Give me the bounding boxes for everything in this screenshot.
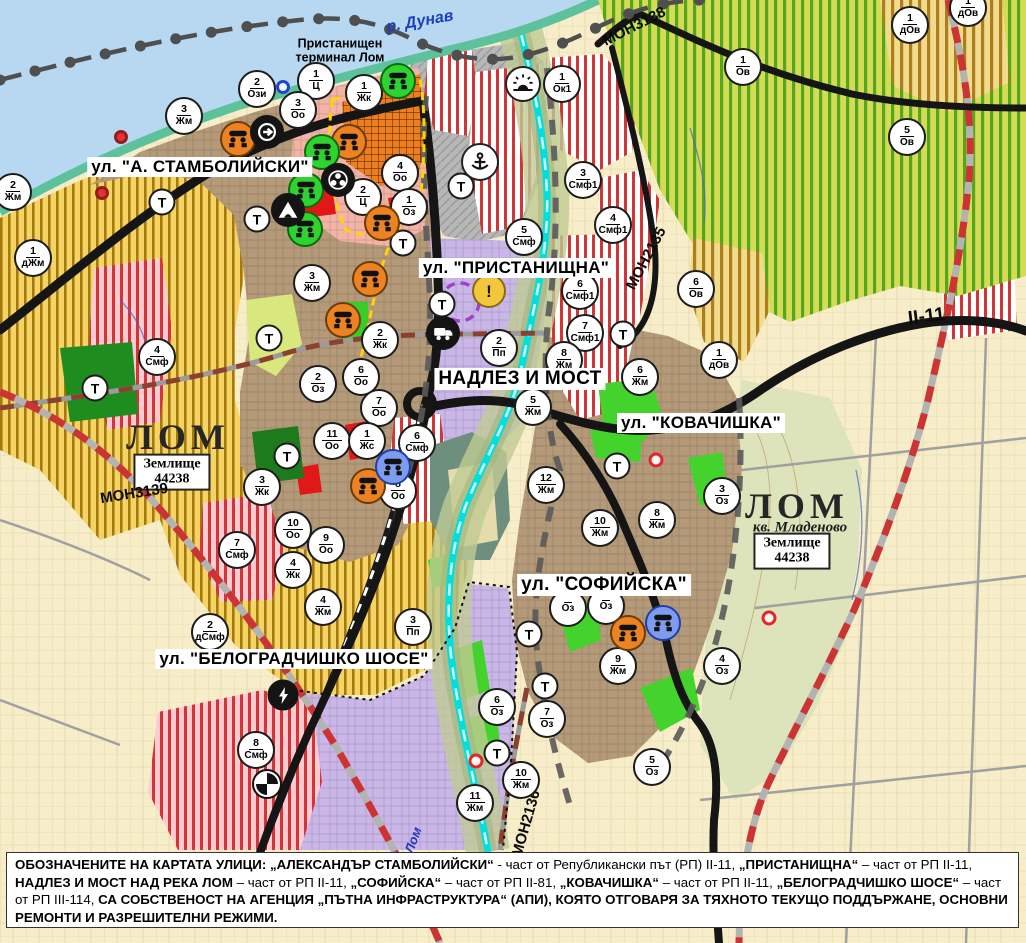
zone-marker: 11Жм (456, 784, 494, 822)
zone-marker: 3Пп (394, 608, 432, 646)
footnote-segment: НАДЛЕЗ И МОСТ НАД РЕКА ЛОМ (15, 875, 233, 890)
zone-marker-number: 7 (372, 396, 386, 409)
circled-arrow-icon (250, 115, 284, 149)
zone-marker-code: Жм (5, 192, 21, 204)
zone-marker-number: 8 (557, 348, 571, 361)
land-register-number: 44238 (763, 551, 820, 566)
zone-marker-number: 3 (305, 271, 319, 284)
zone-marker: 1Ов (724, 48, 762, 86)
zone-marker: 5Жм (514, 388, 552, 426)
zone-marker-code: Смф1 (599, 225, 628, 237)
zone-marker-number: 2 (492, 336, 506, 349)
zone-marker-code: дОв (958, 8, 978, 20)
footnote-segment: „СОФИЙСКА“ (350, 875, 441, 890)
zone-marker: 12Жм (527, 466, 565, 504)
zone-marker: 4Смф1 (594, 206, 632, 244)
zone-marker-code: Жм (649, 520, 665, 532)
legend-footnote: ОБОЗНАЧЕНИТЕ НА КАРТАТА УЛИЦИ: „АЛЕКСАНД… (6, 852, 1019, 928)
zone-marker: 9Жм (599, 647, 637, 685)
zone-marker-number: 2 (311, 372, 325, 385)
monument-orange-icon (325, 302, 361, 338)
zone-marker: 4Жк (274, 551, 312, 589)
zone-marker-number: 3 (177, 104, 191, 117)
zone-marker-code: Оз (491, 707, 504, 719)
zone-marker-code: Жс (360, 441, 375, 453)
zone-marker: 1дЖм (14, 239, 52, 277)
zone-marker: 2Пп (480, 329, 518, 367)
footnote-segment: – част от РП II-11, (233, 875, 351, 890)
zone-marker: 3Оо (279, 91, 317, 129)
zone-marker-code: Жм (315, 607, 331, 619)
zone-marker: 1Ок1 (543, 65, 581, 103)
zone-marker-number: 2 (250, 77, 264, 90)
zone-marker-code: Оз (562, 603, 575, 615)
zone-marker-code: Жм (538, 485, 554, 497)
tunnel-icon (271, 193, 305, 227)
zone-marker-number: 5 (645, 755, 659, 768)
zoning-map: р. Дунав Пристанищен терминал Лом Лом ЛО… (0, 0, 1026, 943)
zone-marker: 8Жм (638, 501, 676, 539)
zone-marker-code: Жм (467, 803, 483, 815)
zone-marker-code: Ов (900, 137, 914, 149)
zone-marker: 3Оз (703, 477, 741, 515)
street-label-belogradchishko: ул. "БЕЛОГРАДЧИШКО ШОСЕ" (155, 649, 432, 669)
zone-marker-code: Оз (600, 601, 613, 613)
zone-marker-code: Смф (512, 237, 535, 249)
zone-marker: 8Смф (237, 731, 275, 769)
zone-marker-code: Смф1 (566, 291, 595, 303)
zone-marker-number: 5 (517, 225, 531, 238)
transport-t-marker: Т (256, 325, 283, 352)
zone-marker-code: Ц (312, 81, 319, 93)
land-register-title: Землище (143, 457, 200, 472)
zone-marker-code: Жк (373, 340, 387, 352)
zone-marker-number: 1 (309, 69, 323, 82)
monument-orange-icon (352, 261, 388, 297)
port-terminal-label: Пристанищен терминал Лом (296, 37, 385, 66)
zone-marker-code: Жм (525, 407, 541, 419)
footnote-segment: „БЕЛОГРАДЧИШКО ШОСЕ“ (777, 875, 960, 890)
zone-marker-code: Смф (244, 750, 267, 762)
warning-icon: ! (472, 274, 506, 308)
zone-marker-number: 6 (689, 277, 703, 290)
zone-marker-code: Ц (359, 197, 366, 209)
street-label-pristanishtna: ул. "ПРИСТАНИЩНА" (419, 258, 613, 278)
zone-marker: 4Смф (138, 338, 176, 376)
zone-marker-code: Оо (319, 545, 333, 557)
zone-marker-number: 6 (354, 365, 368, 378)
zone-marker-code: Оо (354, 377, 368, 389)
zone-marker-code: Жм (513, 780, 529, 792)
zone-marker: 3Жк (243, 468, 281, 506)
transport-t-marker: Т (429, 291, 456, 318)
zone-marker-code: Оз (716, 496, 729, 508)
zone-marker: 9Оо (307, 526, 345, 564)
zone-marker-number: 4 (715, 654, 729, 667)
zone-marker-number: 3 (406, 615, 420, 628)
monument-orange-icon (364, 205, 400, 241)
zone-marker-number: 1 (26, 246, 40, 259)
zone-marker: 3Жм (165, 97, 203, 135)
zone-marker: 4Оз (703, 647, 741, 685)
zone-marker-number: 7 (540, 707, 554, 720)
zone-marker-code: Пп (492, 348, 505, 360)
zone-marker: 1Жк (345, 74, 383, 112)
zone-marker-number: 10 (283, 518, 303, 531)
zone-marker-number: 4 (316, 595, 330, 608)
zone-marker-code: Оо (372, 408, 386, 420)
zone-marker-number: 1 (357, 81, 371, 94)
footnote-segment: – част от РП II-11, (659, 875, 777, 890)
zone-marker: 6Ов (677, 270, 715, 308)
zone-marker-number: 5 (900, 125, 914, 138)
zone-marker-number: 1 (736, 55, 750, 68)
zone-marker-code: Оз (646, 767, 659, 779)
zone-marker: 5Оз (633, 748, 671, 786)
zone-marker-number: 4 (150, 345, 164, 358)
footnote-segment: – част от РП II-81, (441, 875, 560, 890)
footnote-segment: – част от РП II-11, (858, 857, 972, 872)
zone-marker: 3Смф1 (564, 161, 602, 199)
zone-marker-code: дСмф (195, 632, 225, 644)
zone-marker: 7Оз (528, 700, 566, 738)
zone-marker-number: 3 (291, 98, 305, 111)
monument-orange-icon (610, 615, 646, 651)
city-label-lom-west: ЛОМ (126, 416, 230, 458)
zone-marker-number: 6 (633, 365, 647, 378)
zone-marker: 3Жм (293, 264, 331, 302)
footnote-segment: „КОВАЧИШКА“ (560, 875, 659, 890)
zone-marker: 11Оо (313, 422, 351, 460)
crossing-icon (252, 769, 282, 799)
zone-marker-number: 11 (322, 429, 341, 442)
zone-marker-code: Оз (716, 666, 729, 678)
sunrise-icon (505, 66, 541, 102)
zone-marker-number: 3 (715, 484, 729, 497)
zone-marker-code: Смф1 (569, 180, 598, 192)
zone-marker-number: 4 (606, 213, 620, 226)
zone-marker-code: Оо (391, 491, 405, 503)
zone-marker-code: Пп (406, 627, 419, 639)
zone-marker: 2дСмф (191, 613, 229, 651)
transport-t-marker: Т (610, 321, 637, 348)
transport-t-marker: Т (82, 375, 109, 402)
zone-marker: 5Смф (505, 218, 543, 256)
red-ring-icon (649, 453, 664, 468)
zone-marker-number: 6 (490, 695, 504, 708)
zone-marker-number: 3 (576, 168, 590, 181)
monument-green-icon (380, 63, 416, 99)
zone-marker-code: Оо (291, 110, 305, 122)
zone-marker-code: дОв (900, 25, 920, 37)
street-label-sofiyska: ул. "СОФИЙСКА" (517, 574, 691, 596)
zone-marker-number: 11 (465, 791, 484, 804)
zone-marker-number: 7 (230, 538, 244, 551)
blue-ring-icon (276, 80, 290, 94)
zone-marker: 7Смф (218, 531, 256, 569)
zone-marker-code: дЖм (22, 258, 45, 270)
land-register-box-east: Землище 44238 (753, 533, 830, 570)
zone-marker-code: Оо (286, 530, 300, 542)
road-label-ii-11: II-11 (907, 304, 946, 330)
zone-marker-number: 1 (961, 0, 975, 8)
zone-marker-number: 2 (373, 328, 387, 341)
transport-t-marker: Т (244, 206, 271, 233)
footnote-segment: СА СОБСТВЕНОСТ НА АГЕНЦИЯ „ПЪТНА ИНФРАСТ… (15, 892, 1008, 925)
zone-marker-code: Жк (286, 570, 300, 582)
zone-marker-code: Жм (176, 116, 192, 128)
transport-t-marker: Т (516, 621, 543, 648)
zone-marker-code: Ок1 (553, 84, 571, 96)
footnote-segment: „ПРИСТАНИЩНА“ (739, 857, 858, 872)
transport-t-marker: Т (532, 673, 559, 700)
zone-marker-code: Оз (403, 207, 416, 219)
zone-marker-number: 3 (255, 475, 269, 488)
anchor-icon (461, 143, 499, 181)
zone-marker-code: Жм (304, 283, 320, 295)
zone-marker-number: 1 (712, 348, 726, 361)
zone-marker-code: Оз (312, 384, 325, 396)
zone-marker-number: 1 (903, 13, 917, 26)
zone-marker-number: 8 (249, 738, 263, 751)
zone-marker-code: Смф (145, 357, 168, 369)
transport-t-marker: Т (604, 453, 631, 480)
zone-marker: 2Жк (361, 321, 399, 359)
lightning-icon (268, 680, 299, 711)
transport-t-marker: Т (484, 740, 511, 767)
zone-marker: 6Жм (621, 358, 659, 396)
land-register-title: Землище (763, 536, 820, 551)
transport-t-marker: Т (149, 189, 176, 216)
zone-marker-code: Жм (592, 528, 608, 540)
zone-marker-number: 4 (393, 161, 407, 174)
zone-marker-code: Ов (689, 289, 703, 301)
zone-marker-code: Ози (248, 89, 267, 101)
red-ring-icon (469, 754, 484, 769)
zone-marker-number: 5 (526, 395, 540, 408)
zone-marker-code: Смф (225, 550, 248, 562)
zone-marker: 4Жм (304, 588, 342, 626)
zone-marker-number: 2 (6, 180, 20, 193)
zone-marker-number: 7 (578, 321, 592, 334)
zone-marker: 4Оо (381, 154, 419, 192)
zone-marker: 2Оз (299, 365, 337, 403)
zone-marker-number: 1 (555, 72, 569, 85)
zone-marker-number: 6 (410, 431, 424, 444)
zone-marker-code: Смф (405, 443, 428, 455)
zone-marker-number: 1 (402, 195, 416, 208)
transport-t-marker: Т (274, 443, 301, 470)
monument-blue-icon (645, 605, 681, 641)
footnote-segment: „АЛЕКСАНДЪР СТАМБОЛИЙСКИ“ (270, 857, 494, 872)
zone-marker-code: дОв (709, 360, 729, 372)
triple-dot-icon (321, 163, 355, 197)
zone-marker-code: Оо (393, 173, 407, 185)
street-label-stamboliyski: ул. "А. СТАМБОЛИЙСКИ" (87, 157, 312, 177)
zone-marker: 1дОв (700, 341, 738, 379)
red-dot-icon (95, 186, 109, 200)
zone-marker-code: Оо (325, 441, 339, 453)
zone-marker: 6Оз (478, 688, 516, 726)
street-label-nadlez-i-most: НАДЛЕЗ И МОСТ (434, 368, 605, 390)
zone-marker-code: Жк (255, 487, 269, 499)
zone-marker-number: 2 (203, 620, 217, 633)
monument-blue-icon (375, 449, 411, 485)
red-ring-icon (762, 611, 777, 626)
zone-marker: 5Ов (888, 118, 926, 156)
port-terminal-line1: Пристанищен (296, 37, 385, 51)
zone-marker: 10Жм (581, 509, 619, 547)
zone-marker-number: 6 (573, 279, 587, 292)
truck-icon (426, 316, 460, 350)
footnote-segment: ОБОЗНАЧЕНИТЕ НА КАРТАТА УЛИЦИ: (15, 857, 270, 872)
footnote-segment: - част от Републикански път (РП) II-11, (494, 857, 739, 872)
zone-marker-number: 8 (650, 508, 664, 521)
zone-marker-number: 10 (511, 768, 531, 781)
zone-marker-number: 10 (590, 516, 610, 529)
zone-marker-code: Оз (541, 719, 554, 731)
zone-marker-code: Жк (357, 93, 371, 105)
zone-marker-code: Жм (610, 666, 626, 678)
red-dot-icon (114, 130, 128, 144)
zone-marker-number: 12 (536, 473, 556, 486)
zone-marker-code: Ов (736, 67, 750, 79)
street-label-kovachishka: ул. "КОВАЧИШКА" (617, 413, 785, 433)
zone-marker: 1дОв (891, 6, 929, 44)
zone-marker-code: Жм (632, 377, 648, 389)
zone-marker-number: 4 (286, 558, 300, 571)
zone-marker: 2Ози (238, 70, 276, 108)
zone-marker-number: 9 (319, 533, 333, 546)
zone-marker: 10Жм (502, 761, 540, 799)
zone-marker-number: 2 (356, 185, 370, 198)
zone-marker-number: 1 (360, 429, 374, 442)
zone-marker-number: 9 (611, 654, 625, 667)
